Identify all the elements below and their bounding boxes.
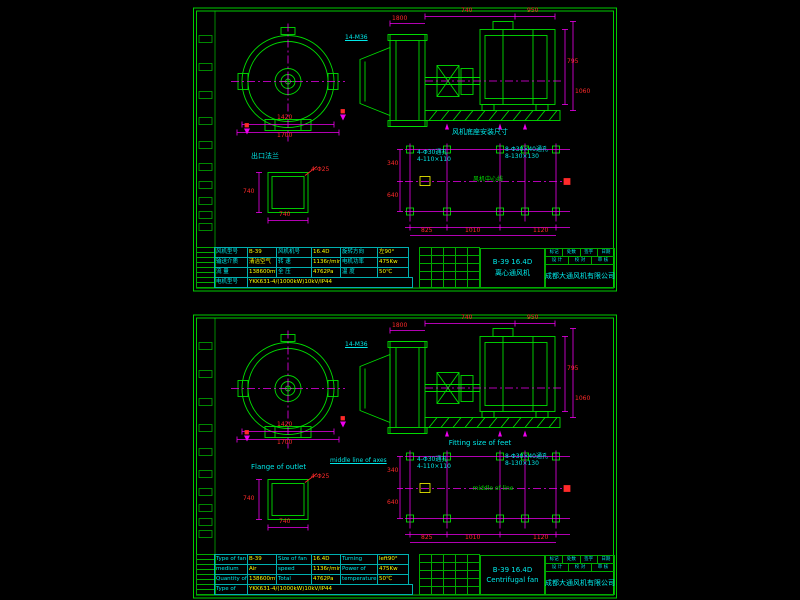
sign-cell: 审 核 [592,564,614,572]
head-cell: 处数 [563,249,580,257]
sign-cell: 设 计 [546,257,569,265]
sign-cell: 校 对 [569,257,592,265]
head-cell: 标记 [546,249,563,257]
head-cell: 签字 [581,249,598,257]
sign-cell: 校 对 [569,564,592,572]
dim-side-right2: 1060 [575,89,590,95]
plan-center-label: 风机中心线 [473,177,503,183]
plan-note-right2: 8-130×130 [505,461,539,467]
head-cell: 签字 [581,556,598,564]
head-cell: 处数 [563,556,580,564]
dim-flange-w: 740 [279,212,290,218]
head-cell: 日期 [598,249,614,257]
plan-title: 风机底座安装尺寸 [452,129,508,136]
revision-grid [420,555,480,595]
signature-block: 标记 处数 签字 日期 设 计 校 对 审 核 成都大通风机有限公司 [545,248,615,288]
title-block: B-39 16.4D Centrifugal fan [480,555,545,595]
frame-cell [196,589,216,595]
dim-plan-b2: 1010 [465,535,480,541]
dim-plan-l1: 340 [387,161,398,167]
dim-plan-l1: 340 [387,468,398,474]
dim-flange-w: 740 [279,519,290,525]
frame-cell [196,282,216,288]
spec-table: Type of fanB-39Size of fan16.4DTurning d… [215,555,413,595]
sign-cell: 设 计 [546,564,569,572]
spec-value: YKK631-4/(1000kW)10kV/IP44 [247,584,413,595]
revision-cell [467,586,480,595]
company-name: 成都大通风机有限公司 [546,572,614,594]
dim-side-left: 1800 [392,323,407,329]
dim-front-overall: 1700 [277,440,292,446]
dim-front-width: 1420 [277,422,292,428]
dim-side-top1: 740 [461,315,472,321]
dim-plan-b3: 1120 [533,535,548,541]
plan-note-left2: 4-110×110 [417,464,451,470]
dim-side-top1: 740 [461,8,472,14]
dim-plan-b1: 825 [421,228,432,234]
revision-grid [420,248,480,288]
dim-flange-h: 740 [243,189,254,195]
fan-model: B-39 16.4D [493,566,532,574]
spec-table: 风机型号B-39风机机号16.4D旋转方向左90°输送介质清洁空气转 速1136… [215,248,413,288]
dim-plan-l2: 640 [387,193,398,199]
spec-label: 电机型号 [214,277,248,288]
plan-axis-label: middle line of axes [330,458,387,464]
dim-side-left: 1800 [392,16,407,22]
frame-mini-column [196,248,216,288]
fan-name: 离心通风机 [495,268,530,278]
plan-note-right2: 8-130×130 [505,154,539,160]
flange-bolt-note: 4-Φ25 [311,167,329,173]
fan-model: B-39 16.4D [493,258,532,266]
bolt-note: 14-M36 [345,35,368,41]
plan-center-label: middle of line [473,486,514,492]
bolt-note: 14-M36 [345,342,368,348]
plan-note-left2: 4-110×110 [417,157,451,163]
flange-bolt-note: 4-Φ25 [311,474,329,480]
plan-title: Fitting size of feet [449,440,512,447]
outlet-flange-label: 出口法兰 [251,153,279,160]
spec-value: YKK631-4/(1000kW)10kV/IP44 [247,277,413,288]
dim-plan-l2: 640 [387,500,398,506]
dim-side-right2: 1060 [575,396,590,402]
dim-front-width: 1420 [277,115,292,121]
head-cell: 日期 [598,556,614,564]
dim-plan-b3: 1120 [533,228,548,234]
fan-name: Centrifugal fan [486,576,538,584]
dim-side-right1: 795 [567,366,578,372]
drawing-sheet-english: 1420 1700 14-M36 740 950 1800 795 1060 F… [193,314,617,599]
frame-mini-column [196,555,216,595]
dim-front-overall: 1700 [277,133,292,139]
revision-cell [467,279,480,288]
spec-label: Type of motor [214,584,248,595]
sign-cell: 审 核 [592,257,614,265]
outlet-flange-label: Flange of outlet [251,464,306,471]
head-cell: 标记 [546,556,563,564]
dim-side-top2: 950 [527,8,538,14]
dim-side-top2: 950 [527,315,538,321]
dim-flange-h: 740 [243,496,254,502]
signature-block: 标记 处数 签字 日期 设 计 校 对 审 核 成都大通风机有限公司 [545,555,615,595]
dim-side-right1: 795 [567,59,578,65]
drawing-sheet-chinese: 1420 1700 14-M36 740 950 1800 795 1060 出… [193,7,617,292]
dim-plan-b1: 825 [421,535,432,541]
title-block: B-39 16.4D 离心通风机 [480,248,545,288]
dim-plan-b2: 1010 [465,228,480,234]
company-name: 成都大通风机有限公司 [546,265,614,287]
